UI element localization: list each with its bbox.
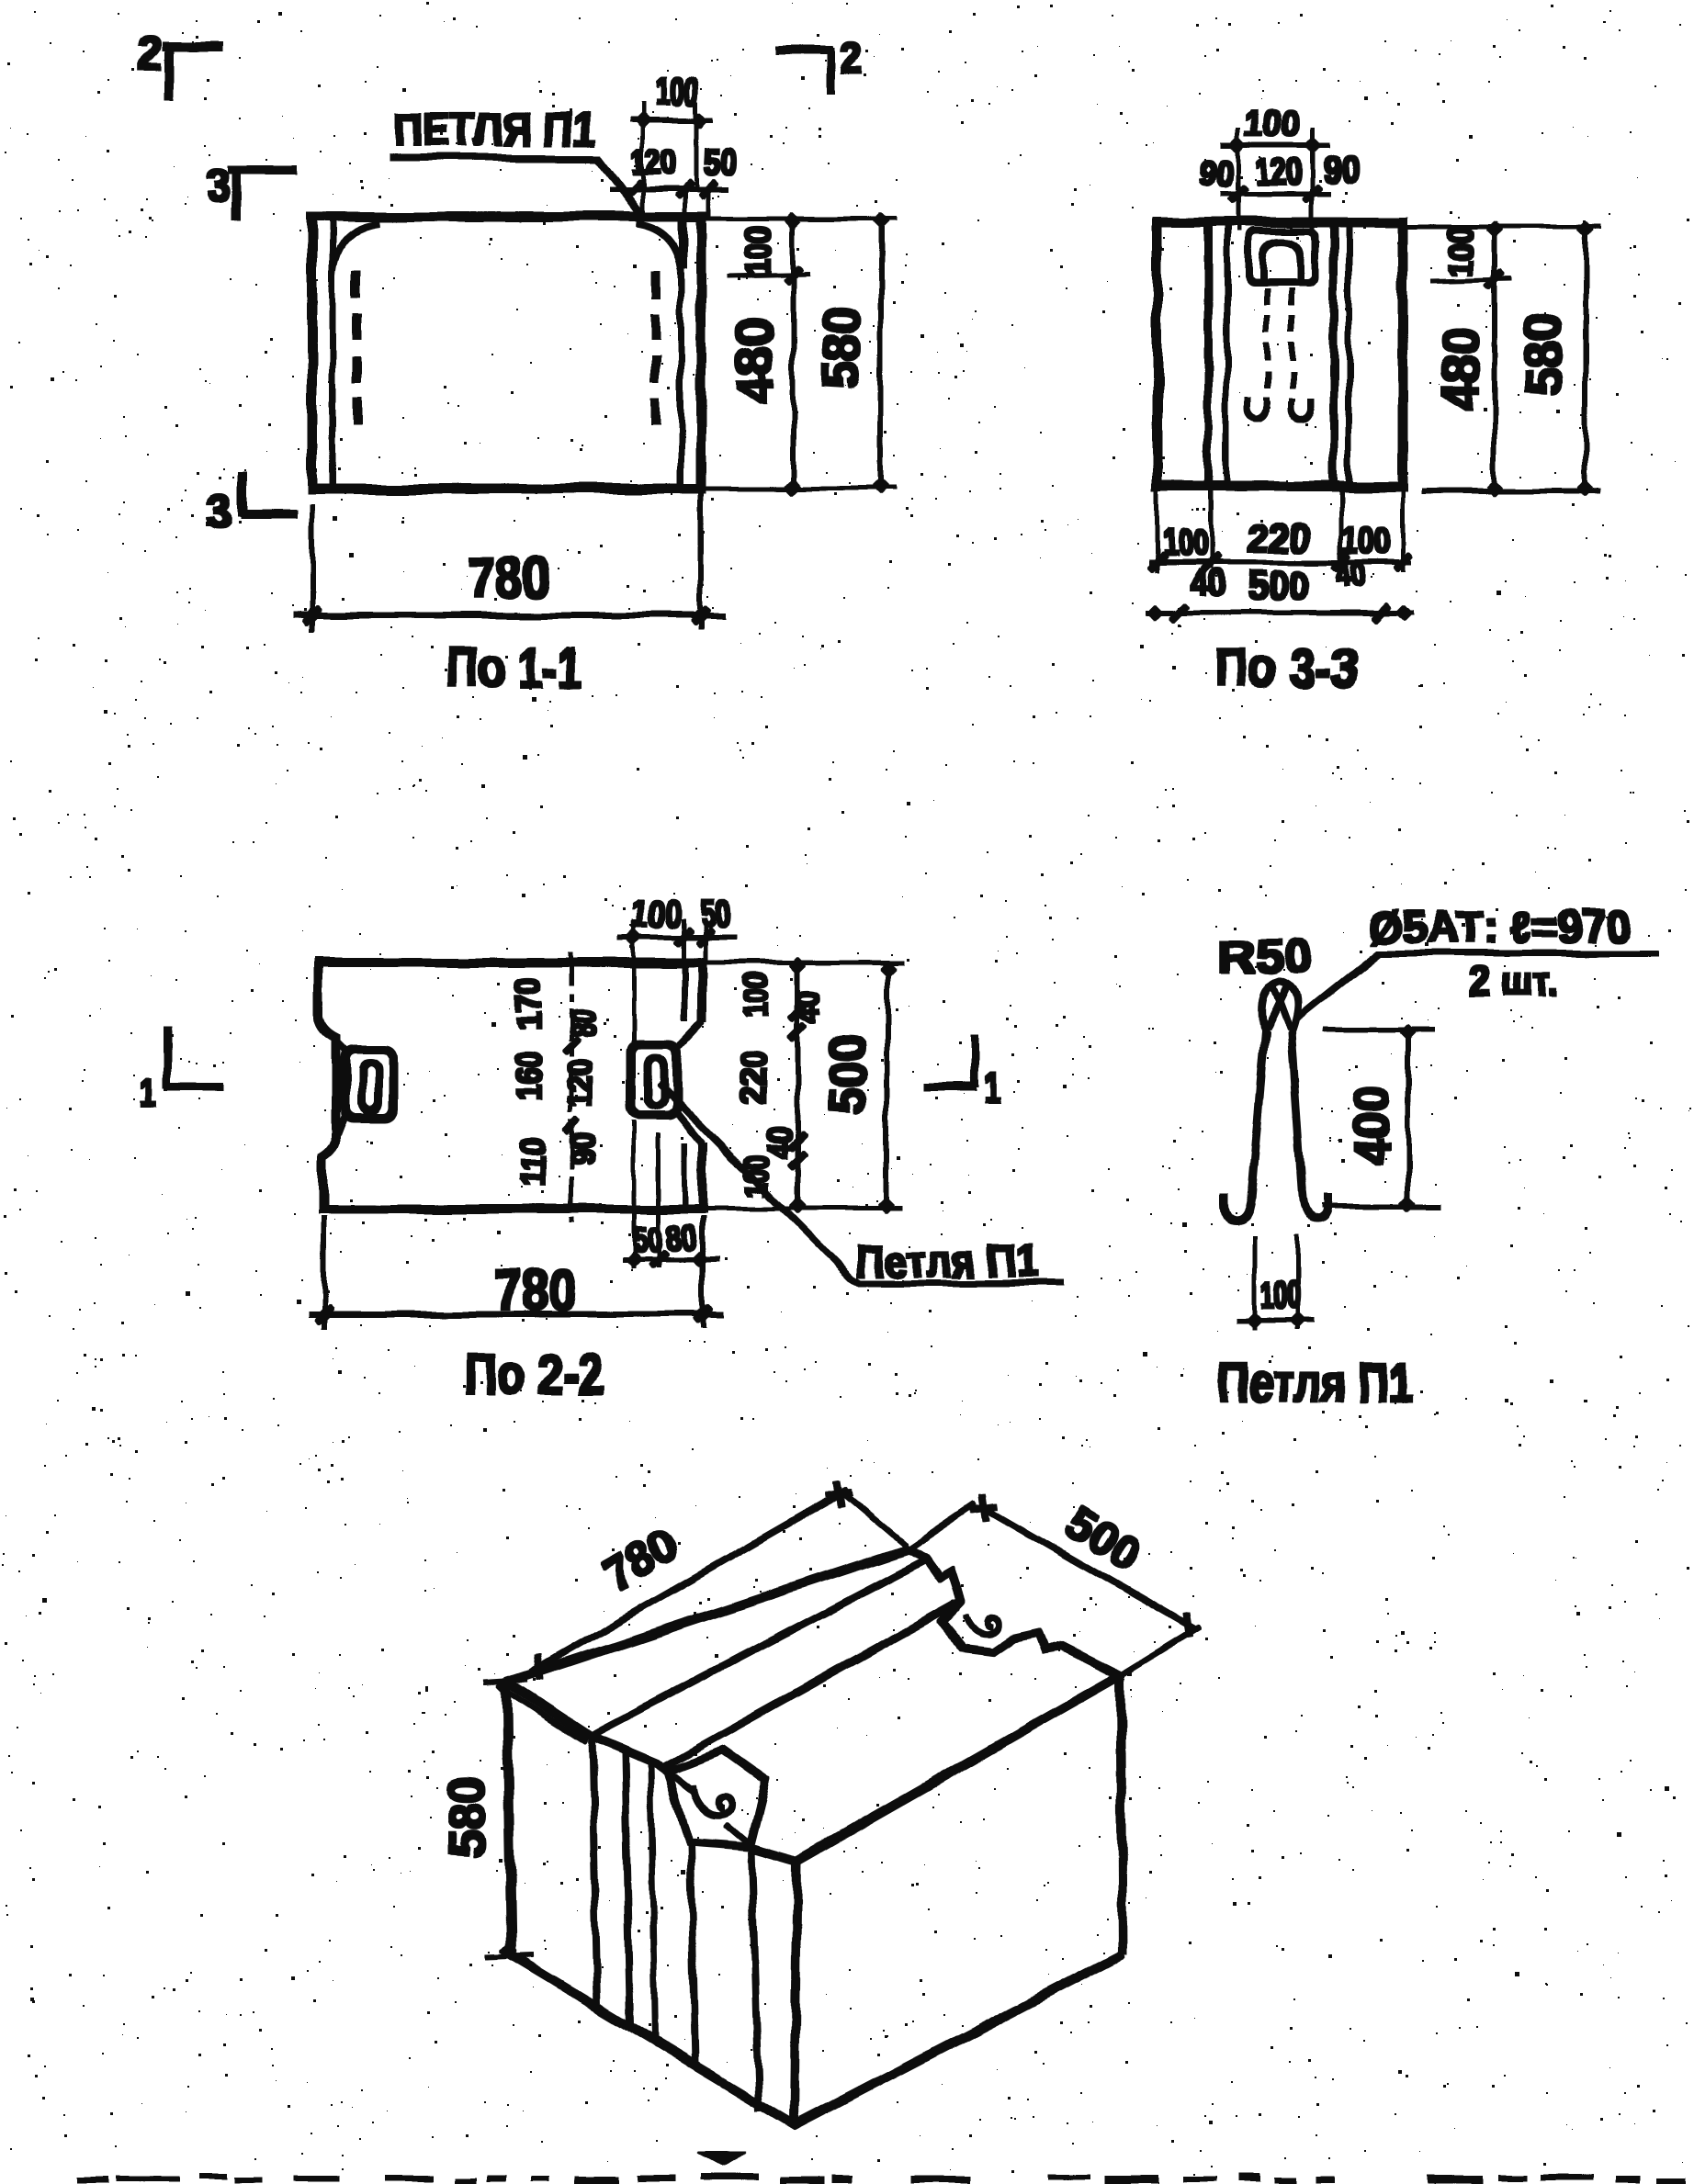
svg-text:Ø5АТ: ℓ=970: Ø5АТ: ℓ=970 <box>1369 904 1631 952</box>
svg-text:100: 100 <box>737 972 774 1018</box>
svg-text:50: 50 <box>704 142 737 183</box>
svg-text:40: 40 <box>1335 556 1364 593</box>
svg-text:100: 100 <box>1261 1276 1300 1316</box>
svg-text:480: 480 <box>1431 328 1489 411</box>
svg-text:100: 100 <box>740 225 778 276</box>
svg-text:Петля П1: Петля П1 <box>1218 1352 1413 1413</box>
svg-text:2 шт.: 2 шт. <box>1470 957 1558 1005</box>
svg-text:3: 3 <box>206 160 230 211</box>
svg-text:50: 50 <box>633 1221 662 1259</box>
svg-text:160: 160 <box>511 1051 549 1102</box>
svg-text:R50: R50 <box>1218 933 1314 982</box>
svg-text:100: 100 <box>738 1155 775 1198</box>
svg-text:90: 90 <box>563 1132 601 1164</box>
svg-text:100: 100 <box>1442 227 1481 276</box>
svg-text:220: 220 <box>736 1050 774 1103</box>
svg-text:100: 100 <box>1163 523 1207 563</box>
svg-text:2: 2 <box>138 27 162 78</box>
svg-text:580: 580 <box>437 1776 495 1857</box>
svg-text:120: 120 <box>632 142 676 183</box>
svg-text:480: 480 <box>726 317 784 405</box>
svg-text:110: 110 <box>514 1139 552 1187</box>
svg-text:400: 400 <box>1344 1087 1399 1165</box>
svg-text:По 1-1: По 1-1 <box>446 637 582 699</box>
svg-text:1: 1 <box>985 1066 1001 1111</box>
svg-text:1: 1 <box>140 1071 156 1116</box>
svg-text:780: 780 <box>494 1259 577 1323</box>
svg-text:40: 40 <box>789 990 827 1023</box>
svg-text:По 2-2: По 2-2 <box>465 1344 603 1407</box>
svg-text:100: 100 <box>1243 104 1300 144</box>
svg-text:780: 780 <box>467 546 551 610</box>
svg-text:ПЕТЛЯ П1: ПЕТЛЯ П1 <box>393 104 595 155</box>
svg-text:40: 40 <box>761 1127 798 1158</box>
svg-text:500: 500 <box>1248 563 1308 608</box>
svg-text:По 3-3: По 3-3 <box>1214 637 1358 699</box>
svg-text:Петля П1: Петля П1 <box>856 1235 1038 1287</box>
svg-text:120: 120 <box>1255 153 1303 192</box>
svg-text:80: 80 <box>666 1219 697 1257</box>
svg-text:120: 120 <box>561 1060 599 1108</box>
svg-text:170: 170 <box>510 977 548 1029</box>
svg-text:500: 500 <box>820 1035 875 1114</box>
svg-text:580: 580 <box>812 307 870 389</box>
svg-text:90: 90 <box>1324 152 1361 190</box>
svg-text:100: 100 <box>630 894 682 934</box>
svg-text:40: 40 <box>1191 563 1225 602</box>
svg-text:80: 80 <box>563 1008 601 1038</box>
svg-text:2: 2 <box>840 35 862 84</box>
svg-text:3: 3 <box>208 486 232 537</box>
svg-text:100: 100 <box>656 73 698 113</box>
svg-text:220: 220 <box>1247 516 1311 559</box>
svg-text:580: 580 <box>1514 313 1572 396</box>
svg-text:90: 90 <box>1200 155 1233 194</box>
